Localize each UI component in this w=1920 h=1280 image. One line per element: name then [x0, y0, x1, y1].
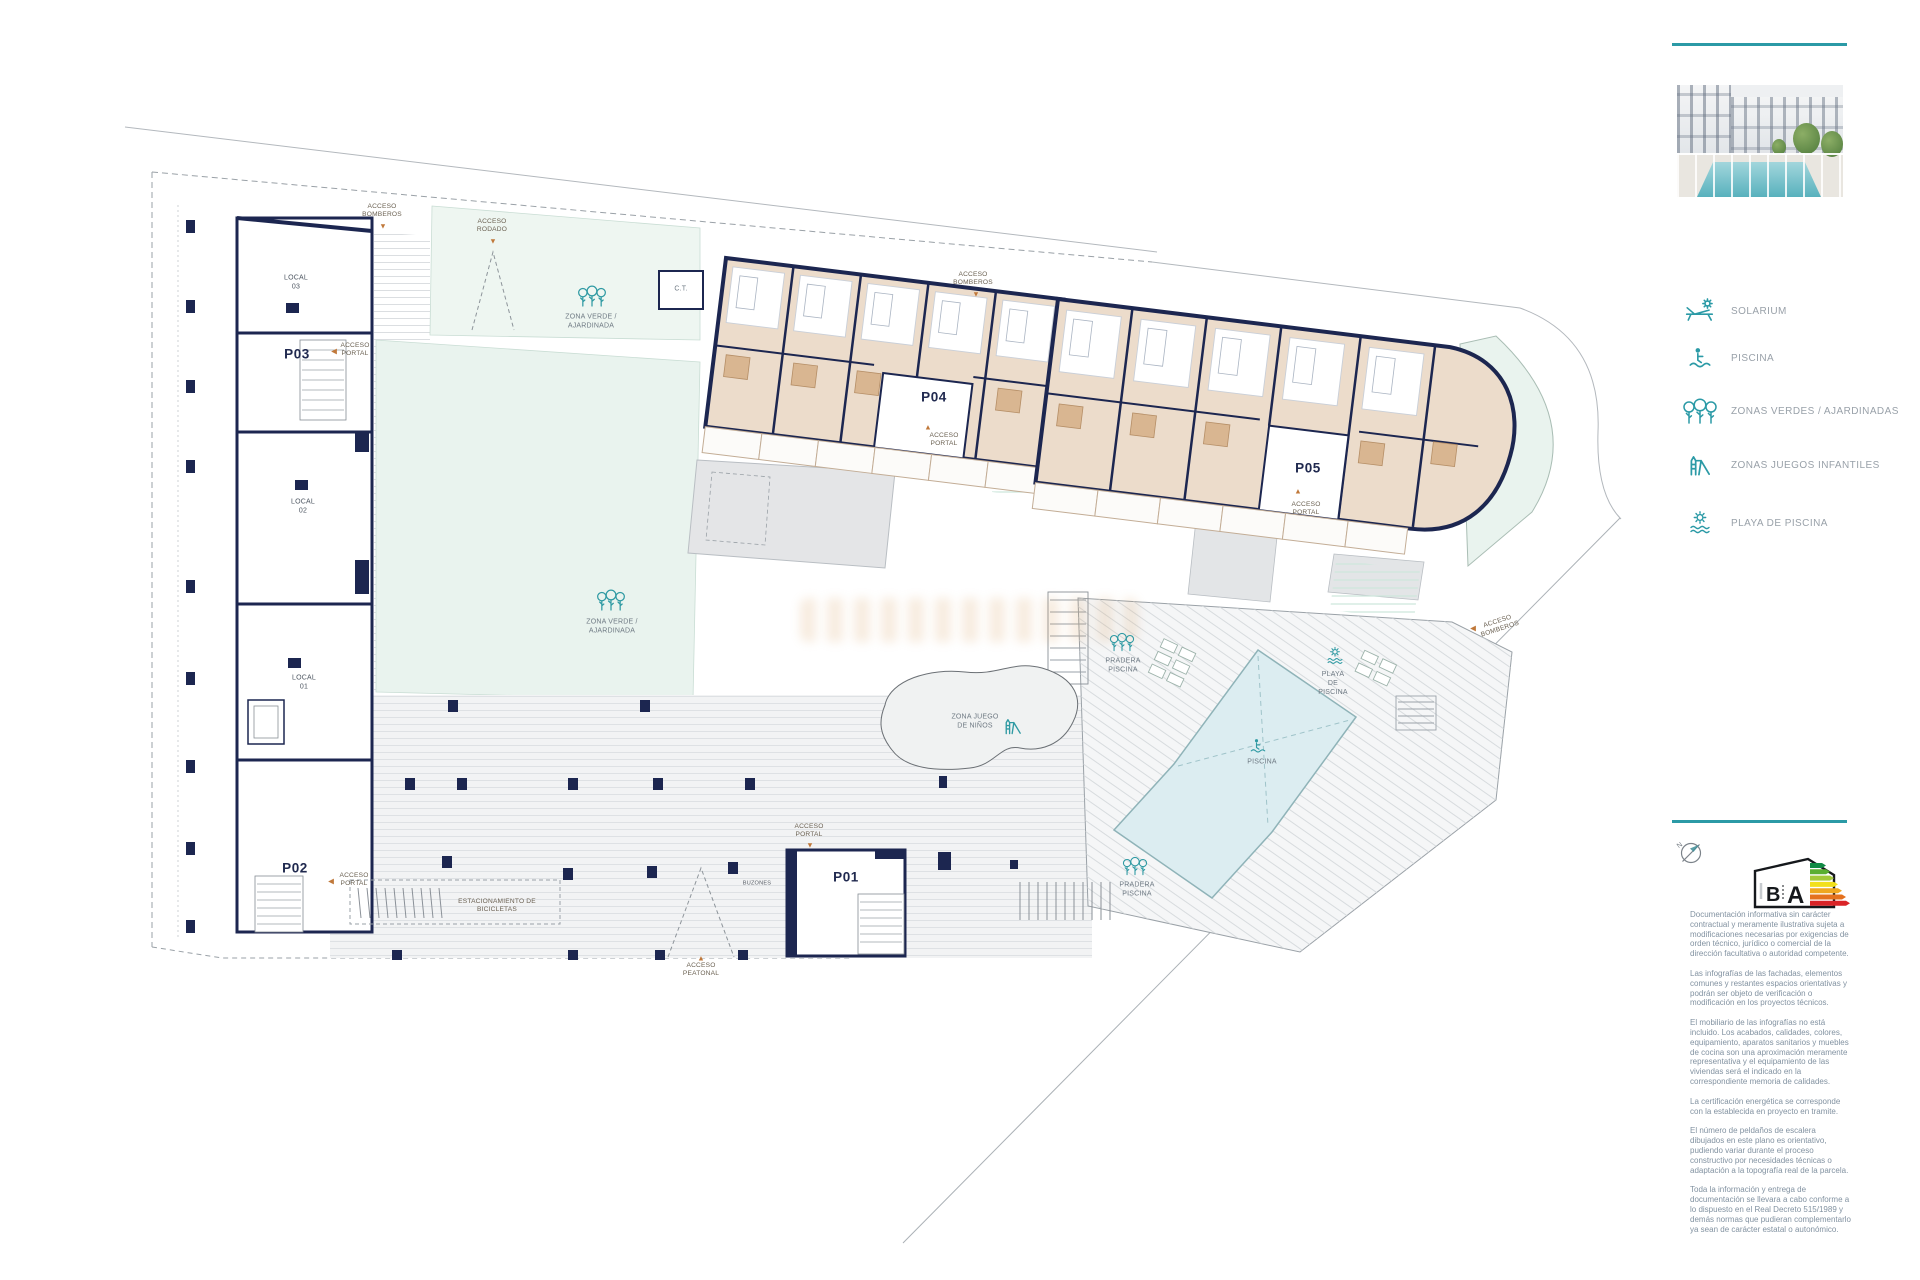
compass-icon: N — [1676, 838, 1704, 866]
legend-item-playa-piscina: PLAYA DE PISCINA — [1682, 505, 1828, 541]
label-portal-p05: P05 — [1295, 461, 1321, 478]
disclaimer-paragraph: Las infografías de las fachadas, element… — [1690, 969, 1851, 1008]
label-pradera-piscina-1: PRADERA PISCINA — [1105, 657, 1140, 675]
trees-icon — [577, 284, 607, 308]
pool-person-icon — [1682, 346, 1718, 370]
legend-label: ZONAS VERDES / AJARDINADAS — [1731, 406, 1899, 417]
legal-disclaimer: Documentación informativa sin carácter c… — [1690, 910, 1851, 1244]
arrow-down-icon: ▼ — [489, 237, 496, 245]
trees-icon — [1122, 856, 1148, 877]
label-pradera-piscina-2: PRADERA PISCINA — [1119, 881, 1154, 899]
label-buzones: BUZONES — [743, 881, 771, 888]
arrow-left-icon: ◀ — [328, 877, 334, 885]
trees-icon — [596, 588, 626, 612]
trees-icon — [1109, 632, 1135, 653]
arrow-up-icon: ▲ — [1294, 487, 1301, 495]
watermark-smudge — [800, 598, 1138, 642]
energy-letter-a: A — [1787, 882, 1804, 909]
arrow-left-icon: ◀ — [1470, 624, 1476, 632]
building-p05 — [1032, 299, 1524, 566]
label-acceso-portal-p01: ACCESO PORTAL — [794, 823, 823, 839]
label-portal-p02: P02 — [282, 861, 308, 878]
arrow-up-icon: ▲ — [924, 423, 931, 431]
top-divider — [1672, 43, 1847, 46]
colonnade-columns — [186, 220, 195, 933]
legend-label: ZONAS JUEGOS INFANTILES — [1731, 460, 1880, 471]
label-zona-juego: ZONA JUEGO DE NIÑOS — [951, 713, 998, 731]
site-plan-page: ACCESO BOMBEROS ▼ ACCESO RODADO ▼ LOCAL … — [0, 0, 1920, 1280]
arrow-down-icon: ▼ — [972, 290, 979, 298]
label-ct: C.T. — [674, 286, 687, 295]
label-local-03: LOCAL 03 — [284, 274, 308, 292]
project-photo — [1677, 85, 1843, 197]
label-portal-p04: P04 — [921, 390, 947, 407]
label-acceso-portal-p02: ACCESO PORTAL — [339, 872, 368, 888]
solarium-icon — [1682, 298, 1718, 324]
disclaimer-paragraph: El número de peldaños de escalera dibuja… — [1690, 1126, 1851, 1175]
label-acceso-portal-p03: ACCESO PORTAL — [340, 342, 369, 358]
label-zona-verde-center: ZONA VERDE / AJARDINADA — [586, 618, 637, 636]
legend-item-juegos-infantiles: ZONAS JUEGOS INFANTILES — [1682, 447, 1880, 483]
slide-icon — [1682, 451, 1718, 479]
arrow-left-icon: ◀ — [331, 347, 337, 355]
slide-icon — [1002, 715, 1024, 737]
label-playa-de-piscina: PLAYA DE PISCINA — [1318, 671, 1347, 697]
label-local-01: LOCAL 01 — [292, 674, 316, 692]
disclaimer-paragraph: El mobiliario de las infografías no está… — [1690, 1018, 1851, 1087]
label-acceso-bomberos-mid: ACCESO BOMBEROS — [953, 271, 993, 287]
label-portal-p01: P01 — [833, 870, 859, 887]
arrow-up-icon: ▲ — [697, 954, 704, 962]
label-zona-verde-top: ZONA VERDE / AJARDINADA — [565, 313, 616, 331]
building-p01 — [787, 850, 905, 956]
label-acceso-bomberos-top: ACCESO BOMBEROS — [362, 203, 402, 219]
label-estacionamiento-bicicletas: ESTACIONAMIENTO DE BICICLETAS — [458, 898, 536, 914]
label-local-02: LOCAL 02 — [291, 498, 315, 516]
legend-item-zonas-verdes: ZONAS VERDES / AJARDINADAS — [1682, 393, 1899, 429]
label-acceso-rodado: ACCESO RODADO — [477, 218, 507, 234]
label-portal-p03: P03 — [284, 347, 310, 364]
label-acceso-portal-p05: ACCESO PORTAL — [1291, 501, 1320, 517]
arrow-down-icon: ▼ — [806, 841, 813, 849]
legend-label: PLAYA DE PISCINA — [1731, 518, 1828, 529]
building-p04 — [702, 258, 1063, 494]
sun-waves-icon — [1682, 511, 1718, 535]
pool-person-icon — [1249, 738, 1267, 755]
sun-waves-icon — [1325, 647, 1345, 666]
disclaimer-paragraph: La certificación energética se correspon… — [1690, 1097, 1851, 1117]
photo-fence — [1677, 153, 1843, 197]
disclaimer-paragraph: Documentación informativa sin carácter c… — [1690, 910, 1851, 959]
legend-label: SOLARIUM — [1731, 306, 1787, 317]
legend-item-solarium: SOLARIUM — [1682, 293, 1787, 329]
label-acceso-peatonal: ACCESO PEATONAL — [683, 962, 719, 978]
energy-certificate-logo: B A — [1752, 855, 1852, 911]
trees-icon — [1682, 397, 1718, 425]
photo-tree — [1793, 123, 1820, 154]
label-piscina: PISCINA — [1247, 759, 1276, 768]
energy-letter-b: B — [1766, 884, 1780, 906]
arrow-down-icon: ▼ — [379, 222, 386, 230]
building-left — [237, 218, 372, 932]
legend-label: PISCINA — [1731, 353, 1774, 364]
energy-rating-bars — [1810, 863, 1850, 906]
legend-item-piscina: PISCINA — [1682, 340, 1774, 376]
disclaimer-paragraph: Toda la información y entrega de documen… — [1690, 1185, 1851, 1234]
label-acceso-portal-p04: ACCESO PORTAL — [929, 432, 958, 448]
bottom-divider — [1672, 820, 1847, 823]
